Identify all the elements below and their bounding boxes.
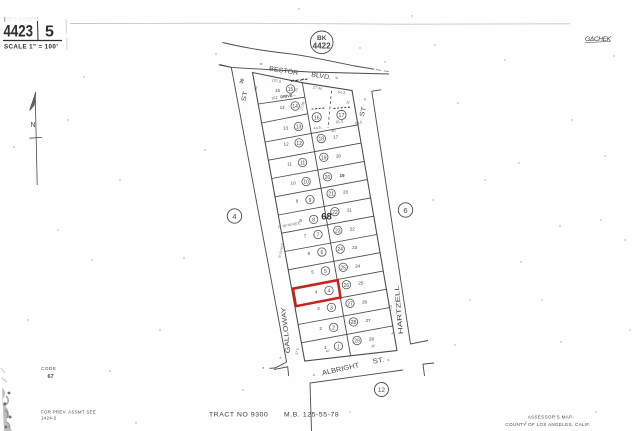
svg-text:18: 18 — [319, 137, 325, 143]
svg-text:21: 21 — [328, 192, 334, 198]
svg-text:12: 12 — [378, 387, 385, 394]
svg-text:27: 27 — [365, 318, 371, 323]
svg-text:18: 18 — [336, 153, 342, 158]
svg-text:11: 11 — [300, 161, 305, 167]
svg-text:TRACT NO 9300: TRACT NO 9300 — [209, 412, 268, 419]
svg-text:≈: ≈ — [312, 372, 316, 378]
svg-text:ALBRIGHT: ALBRIGHT — [321, 362, 360, 377]
svg-text:40: 40 — [371, 344, 376, 349]
svg-text:24: 24 — [337, 247, 343, 253]
svg-text:23: 23 — [352, 245, 358, 250]
svg-text:≈: ≈ — [362, 97, 368, 102]
svg-text:30: 30 — [239, 77, 246, 84]
svg-text:M.B. 125-55-78: M.B. 125-55-78 — [284, 412, 339, 419]
svg-text:26: 26 — [344, 283, 350, 289]
svg-text:ST: ST — [241, 91, 250, 102]
svg-text:15: 15 — [275, 88, 281, 93]
svg-text:COUNTY OF LOS ANGELES, CAL: COUNTY OF LOS ANGELES, CALIF. — [505, 422, 590, 427]
svg-text:19: 19 — [339, 173, 345, 178]
svg-text:26: 26 — [362, 299, 368, 304]
svg-text:≈: ≈ — [387, 357, 391, 363]
svg-text:2: 2 — [332, 326, 335, 332]
svg-text:≈: ≈ — [278, 355, 284, 360]
svg-text:N: N — [31, 122, 36, 129]
svg-text:7: 7 — [317, 233, 320, 239]
svg-text:1: 1 — [337, 344, 340, 350]
svg-text:9: 9 — [296, 199, 299, 204]
svg-text:6: 6 — [308, 251, 311, 256]
svg-text:3: 3 — [317, 306, 320, 311]
svg-text:CODE: CODE — [41, 366, 56, 371]
svg-text:27: 27 — [347, 301, 353, 307]
svg-text:7: 7 — [304, 233, 307, 238]
svg-text:14: 14 — [292, 104, 298, 110]
svg-text:68: 68 — [321, 212, 332, 223]
svg-text:11: 11 — [287, 161, 292, 166]
svg-text:3: 3 — [330, 306, 333, 312]
svg-text:6: 6 — [321, 250, 324, 256]
svg-text:BESTOR: BESTOR — [268, 65, 299, 77]
svg-text:5: 5 — [324, 269, 327, 275]
svg-text:40: 40 — [331, 129, 336, 134]
svg-text:29: 29 — [354, 339, 360, 345]
svg-text:≈: ≈ — [259, 62, 263, 68]
svg-text:67: 67 — [48, 374, 54, 380]
svg-text:27.44: 27.44 — [312, 86, 322, 91]
svg-text:44.5: 44.5 — [313, 126, 321, 131]
svg-text:8: 8 — [312, 218, 315, 224]
svg-text:13: 13 — [296, 125, 302, 131]
svg-text:40: 40 — [325, 349, 330, 354]
svg-text:4422: 4422 — [313, 42, 332, 51]
svg-text:25: 25 — [340, 265, 346, 271]
svg-text:30: 30 — [254, 86, 259, 91]
svg-text:81.5: 81.5 — [335, 119, 343, 124]
svg-text:4: 4 — [328, 289, 331, 295]
svg-text:27.28: 27.28 — [299, 101, 305, 110]
svg-text:6: 6 — [403, 206, 407, 215]
svg-text:24: 24 — [355, 263, 361, 268]
svg-text:101′: 101′ — [271, 96, 278, 101]
svg-text:4423: 4423 — [4, 23, 34, 41]
svg-text:5: 5 — [45, 24, 54, 41]
svg-text:4: 4 — [232, 212, 236, 221]
svg-text:20: 20 — [343, 190, 349, 195]
svg-text:22: 22 — [332, 210, 338, 216]
svg-text:20: 20 — [325, 175, 331, 181]
svg-text:2: 2 — [319, 326, 322, 331]
svg-text:4: 4 — [315, 289, 318, 294]
svg-text:9: 9 — [309, 198, 312, 204]
svg-text:ST.: ST. — [372, 357, 385, 366]
svg-text:22: 22 — [350, 226, 356, 231]
svg-text:37.5: 37.5 — [295, 348, 301, 355]
svg-text:10: 10 — [291, 180, 297, 185]
svg-text:5: 5 — [311, 270, 314, 275]
svg-text:12: 12 — [296, 141, 302, 147]
svg-text:GALLOWAY: GALLOWAY — [280, 306, 292, 353]
svg-text:213: 213 — [388, 305, 393, 312]
svg-text:10: 10 — [303, 180, 309, 186]
svg-text:31: 31 — [346, 100, 351, 105]
svg-text:≈: ≈ — [335, 75, 339, 81]
svg-text:16: 16 — [314, 115, 320, 121]
svg-text:19: 19 — [321, 155, 327, 161]
svg-text:1424-2: 1424-2 — [41, 416, 57, 421]
svg-text:17: 17 — [339, 113, 345, 119]
svg-text:28: 28 — [369, 337, 375, 342]
svg-text:12: 12 — [284, 142, 290, 147]
svg-text:21: 21 — [347, 208, 353, 213]
svg-text:SCALE 1” = 100’: SCALE 1” = 100’ — [4, 44, 58, 51]
svg-text:28: 28 — [351, 320, 357, 326]
svg-text:107.9: 107.9 — [271, 78, 281, 84]
svg-text:FOR PREV. ASSMT SEE: FOR PREV. ASSMT SEE — [41, 410, 96, 415]
svg-text:ST: ST — [359, 106, 368, 118]
svg-text:14: 14 — [280, 105, 286, 110]
svg-text:HARTZELL: HARTZELL — [394, 285, 405, 335]
svg-text:N 79°45′48″E: N 79°45′48″E — [278, 221, 301, 229]
svg-text:25: 25 — [358, 281, 364, 286]
svg-text:23: 23 — [335, 228, 341, 234]
svg-text:ASSESSOR’S MAP-: ASSESSOR’S MAP- — [528, 415, 575, 420]
svg-text:DRIVE→: DRIVE→ — [280, 92, 297, 99]
svg-text:48.5: 48.5 — [354, 120, 362, 125]
svg-text:54.3: 54.3 — [337, 90, 345, 95]
svg-text:13: 13 — [283, 125, 289, 130]
svg-text:17: 17 — [333, 135, 339, 140]
